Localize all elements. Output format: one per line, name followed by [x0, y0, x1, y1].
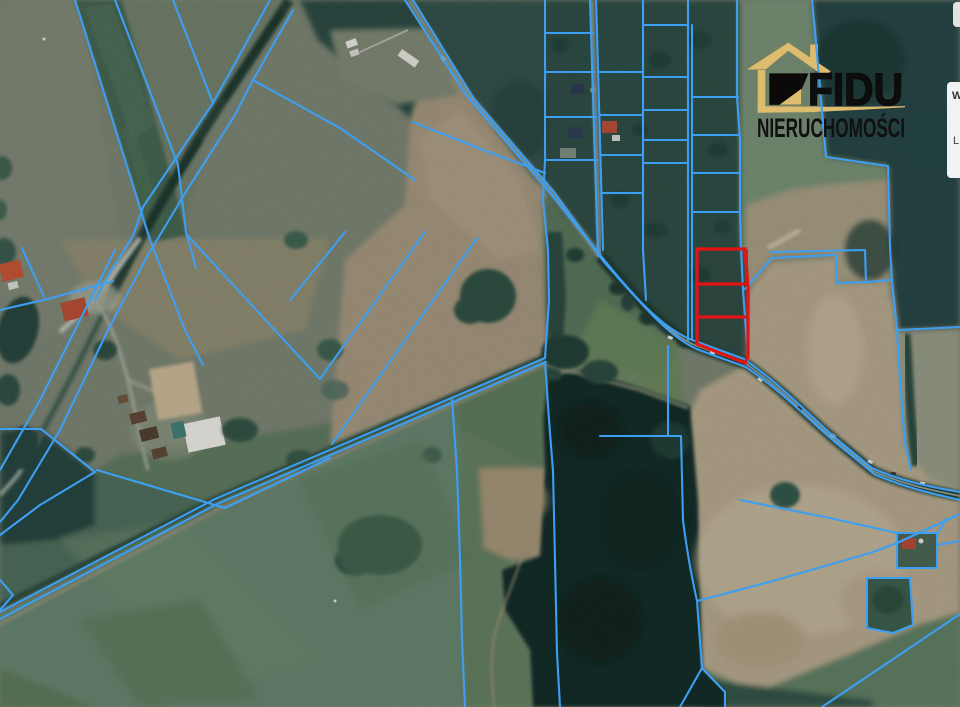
svg-text:FIDU: FIDU — [808, 64, 903, 115]
svg-text:NIERUCHOMOŚCI: NIERUCHOMOŚCI — [757, 112, 905, 143]
svg-text:W: W — [952, 90, 960, 102]
svg-text:L: L — [953, 135, 959, 147]
